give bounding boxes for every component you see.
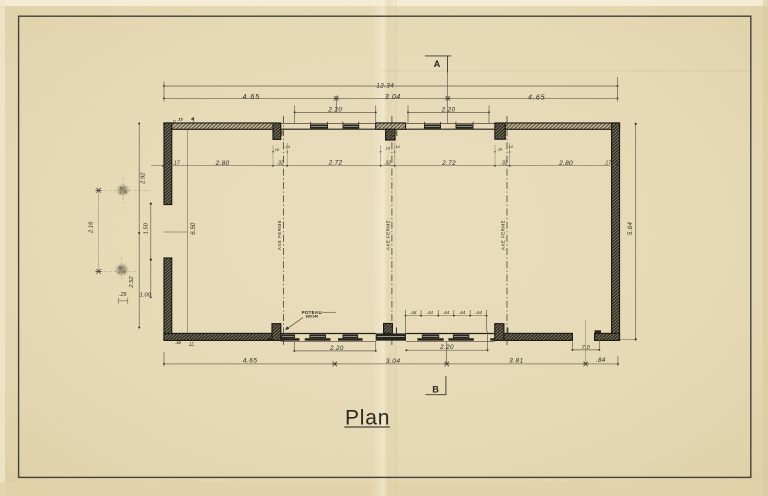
svg-text:2.20: 2.20 (329, 345, 344, 352)
svg-text:17: 17 (189, 341, 194, 346)
svg-text:.44: .44 (475, 310, 482, 316)
svg-text:6.50: 6.50 (190, 222, 197, 235)
svg-text:.17: .17 (173, 160, 181, 166)
svg-text:3.81: 3.81 (509, 358, 524, 365)
svg-text:2.52: 2.52 (129, 276, 135, 289)
svg-text:.18: .18 (274, 147, 280, 152)
svg-text:12.34: 12.34 (376, 82, 394, 89)
svg-text:.32: .32 (384, 160, 391, 166)
svg-text:5.64: 5.64 (627, 222, 634, 236)
svg-text:2.16: 2.16 (89, 221, 95, 234)
svg-text:.14: .14 (394, 144, 400, 149)
svg-text:2.80: 2.80 (215, 160, 230, 167)
svg-text:.44: .44 (426, 310, 433, 316)
svg-text:.84: .84 (596, 357, 606, 364)
svg-text:.25: .25 (119, 292, 128, 298)
svg-text:1.00: 1.00 (140, 293, 152, 299)
svg-text:.15: .15 (177, 117, 183, 121)
svg-text:.44: .44 (443, 310, 450, 316)
svg-text:A: A (434, 59, 441, 69)
svg-text:2.20: 2.20 (439, 344, 454, 351)
svg-text:7.0: 7.0 (582, 345, 591, 351)
svg-text:4.65: 4.65 (242, 94, 260, 101)
svg-text:2.72: 2.72 (328, 160, 343, 167)
svg-text:1.50: 1.50 (144, 222, 150, 234)
svg-text:.44: .44 (410, 310, 417, 316)
svg-text:2.92: 2.92 (141, 172, 147, 185)
svg-text:.15: .15 (175, 340, 181, 345)
svg-text:4.65: 4.65 (528, 94, 546, 101)
svg-text:.44: .44 (459, 310, 466, 316)
svg-text:2.80: 2.80 (558, 160, 573, 167)
svg-text:AXE FERME: AXE FERME (500, 220, 505, 250)
svg-text:3.04: 3.04 (385, 94, 401, 101)
svg-text:B: B (432, 384, 439, 394)
svg-text:.14: .14 (507, 144, 513, 149)
svg-text:AXE FERME: AXE FERME (385, 220, 390, 250)
svg-text:Plan: Plan (345, 407, 390, 430)
svg-text:.18: .18 (497, 146, 503, 151)
svg-text:160/140: 160/140 (305, 315, 318, 319)
svg-text:3.04: 3.04 (386, 358, 401, 365)
svg-text:4.65: 4.65 (243, 357, 258, 364)
svg-text:.32: .32 (277, 161, 284, 167)
svg-text:2.20: 2.20 (441, 107, 456, 114)
svg-text:AXE FERME: AXE FERME (277, 220, 282, 250)
svg-text:.32: .32 (500, 160, 507, 166)
svg-text:.14: .14 (284, 144, 290, 149)
svg-text:2.72: 2.72 (441, 160, 456, 167)
svg-text:2.20: 2.20 (327, 107, 342, 114)
svg-text:.16: .16 (385, 146, 391, 151)
svg-text:.17: .17 (604, 160, 612, 166)
